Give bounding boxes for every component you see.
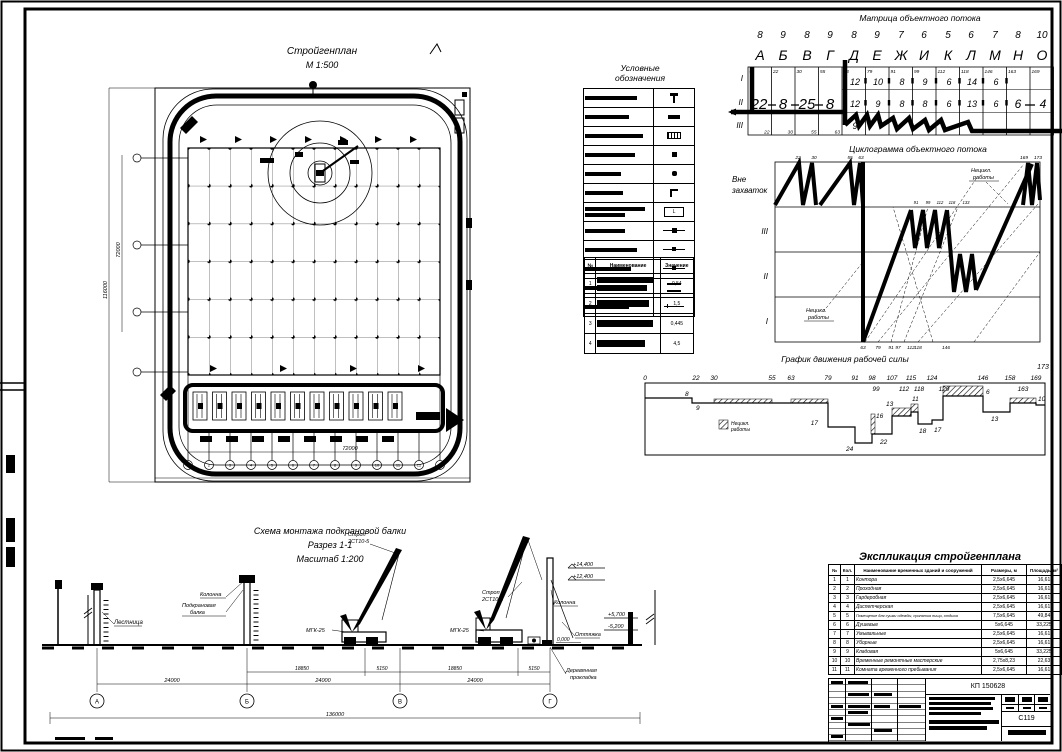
- section-dimensions: 18850 5150 18850 5150 24000 24000 24000 …: [50, 648, 640, 724]
- sling-label: Строп: [348, 532, 366, 538]
- svg-text:4: 4: [1040, 97, 1047, 111]
- dot2-icon: [672, 171, 677, 176]
- svg-text:24000: 24000: [163, 678, 180, 684]
- right-fence: [628, 590, 655, 645]
- svg-text:2СТ10-5: 2СТ10-5: [347, 539, 370, 545]
- labor-end-tick: 173: [1037, 364, 1049, 371]
- pad-label: Деревянная: [565, 668, 597, 674]
- legend-title: Условные: [583, 63, 697, 73]
- flag-icon: [670, 93, 678, 103]
- hatched-box-icon: [667, 132, 681, 139]
- svg-text:Вне: Вне: [732, 175, 747, 184]
- svg-text:99: 99: [872, 386, 880, 393]
- svg-text:8: 8: [757, 30, 763, 41]
- table-row: 1111Комната временного пребывания2,5х6,6…: [829, 666, 1062, 675]
- svg-text:12: 12: [850, 99, 860, 109]
- column-a: Лестница: [91, 583, 144, 645]
- svg-text:8: 8: [804, 30, 810, 41]
- section-titles: Схема монтажа подкрановой балки Разрез 1…: [254, 526, 406, 564]
- svg-text:133: 133: [963, 200, 971, 205]
- svg-text:5150: 5150: [528, 666, 539, 672]
- svg-text:79: 79: [867, 69, 873, 75]
- svg-text:91: 91: [914, 200, 919, 205]
- svg-text:6: 6: [993, 99, 998, 109]
- svg-text:Разрез 1-1: Разрез 1-1: [308, 540, 353, 550]
- svg-text:146: 146: [985, 69, 993, 75]
- svg-text:11: 11: [912, 396, 919, 403]
- svg-text:работы: работы: [807, 315, 829, 321]
- svg-text:118: 118: [914, 386, 925, 393]
- explication-table: № Кол. Наименование временных зданий и с…: [828, 564, 1062, 675]
- svg-text:6: 6: [993, 77, 998, 87]
- svg-text:22: 22: [879, 439, 888, 446]
- crane-model-label-2: МГК-25: [450, 628, 470, 634]
- table-row: 55Помещение для сушки одежды, принятия п…: [829, 612, 1062, 621]
- cyclogram-title: Циклограмма объектного потока: [849, 144, 987, 154]
- svg-text:163: 163: [1018, 386, 1029, 393]
- svg-text:118: 118: [949, 200, 956, 205]
- svg-text:Н: Н: [1013, 47, 1024, 63]
- table-row: 77Умывальные2,5х6,64516,61: [829, 630, 1062, 639]
- matrix-row2-values: 129 88 613 6: [850, 99, 999, 109]
- svg-text:169: 169: [1020, 155, 1028, 161]
- sling-label-2: Строп: [482, 590, 500, 596]
- svg-text:118000: 118000: [341, 472, 360, 478]
- svg-text:8: 8: [899, 99, 904, 109]
- svg-text:12: 12: [850, 77, 860, 87]
- line-square-icon: [663, 230, 685, 231]
- dot-icon: [672, 152, 677, 157]
- box-L-icon: L: [664, 207, 684, 217]
- svg-text:116000: 116000: [103, 280, 109, 299]
- svg-text:79: 79: [824, 375, 832, 382]
- svg-text:I: I: [766, 317, 769, 326]
- labor-legend: Нецикл. работы: [719, 420, 750, 433]
- svg-text:72000: 72000: [116, 241, 122, 257]
- svg-text:Г: Г: [826, 47, 835, 63]
- svg-text:7: 7: [992, 30, 998, 41]
- svg-text:22: 22: [763, 130, 770, 136]
- svg-text:30: 30: [811, 155, 817, 161]
- svg-text:Б: Б: [778, 47, 787, 63]
- svg-text:158: 158: [1005, 375, 1016, 382]
- matrix-row1-values: 1210 89 614 6: [850, 77, 999, 87]
- svg-text:173: 173: [1034, 155, 1042, 161]
- column-label-2: Колонна: [554, 600, 575, 606]
- svg-text:работы: работы: [730, 427, 750, 433]
- explication-title: Экспликация стройгенплана: [828, 551, 1052, 563]
- svg-text:9: 9: [827, 30, 833, 41]
- svg-text:5150: 5150: [376, 666, 387, 672]
- svg-text:III: III: [761, 227, 768, 236]
- svg-text:18850: 18850: [295, 666, 309, 672]
- svg-text:55: 55: [820, 69, 826, 75]
- svg-text:98: 98: [868, 375, 876, 382]
- matrix-row-labels: I II III: [736, 74, 743, 130]
- flow-matrix: Матрица объектного потока 89 89 89 76 56…: [728, 12, 1062, 140]
- svg-text:63: 63: [858, 155, 864, 161]
- col-num: №: [585, 258, 596, 274]
- crane-model-label: МГК-25: [306, 628, 326, 634]
- ladder-label: Лестница: [113, 620, 144, 626]
- svg-text:22: 22: [691, 375, 700, 382]
- svg-text:91: 91: [851, 375, 859, 382]
- table-row: 99Кладовая5х6,64533,225: [829, 648, 1062, 657]
- svg-text:12: 12: [417, 463, 422, 468]
- line-square-icon: [663, 249, 685, 250]
- svg-text:6: 6: [921, 30, 927, 41]
- table-row: 1010Временные ремонтные мастерские2,75х8…: [829, 657, 1062, 666]
- svg-text:В: В: [802, 47, 811, 63]
- labor-step-line: [645, 396, 1045, 443]
- svg-text:7: 7: [898, 30, 904, 41]
- svg-text:работы: работы: [972, 175, 994, 181]
- table-row: 44Диспетчерская2,5х6,64516,61: [829, 603, 1062, 612]
- svg-text:А: А: [754, 47, 764, 63]
- svg-text:91: 91: [891, 69, 897, 75]
- svg-text:55: 55: [847, 155, 853, 161]
- svg-text:22: 22: [772, 69, 779, 75]
- svg-text:Б: Б: [245, 700, 249, 706]
- svg-text:30: 30: [788, 130, 794, 136]
- table-row: 33Гардеробная2,5х6,64516,61: [829, 594, 1062, 603]
- col-value: Значение: [660, 258, 693, 274]
- svg-text:-5,200: -5,200: [608, 624, 625, 630]
- svg-text:К: К: [944, 47, 953, 63]
- svg-text:99: 99: [926, 200, 931, 205]
- svg-text:10: 10: [1036, 30, 1048, 41]
- svg-text:8: 8: [685, 391, 689, 398]
- small-stacks: [200, 436, 394, 442]
- svg-text:М: М: [989, 47, 1001, 63]
- svg-text:163: 163: [1008, 69, 1016, 75]
- sheet-number: С119: [1002, 712, 1051, 727]
- svg-text:И: И: [919, 47, 930, 63]
- svg-text:10: 10: [375, 463, 380, 468]
- svg-text:118: 118: [961, 69, 969, 75]
- svg-text:Г: Г: [548, 700, 552, 706]
- doc-description: [926, 695, 1000, 741]
- params-table: № Наименование Значение 10,54 21,5 30,44…: [584, 257, 694, 354]
- svg-text:13: 13: [991, 416, 999, 423]
- svg-text:112: 112: [899, 386, 910, 393]
- column-b: Колонна Подкрановая балка: [182, 575, 256, 645]
- left-fence: [55, 580, 92, 645]
- svg-text:22: 22: [794, 155, 801, 161]
- svg-text:99: 99: [914, 69, 920, 75]
- svg-text:17: 17: [811, 420, 819, 427]
- plan-axes: 12 34 56 78 910 1112 13: [184, 375, 445, 470]
- svg-text:III: III: [736, 121, 743, 130]
- signature-grid: [829, 679, 925, 741]
- svg-text:10: 10: [873, 77, 883, 87]
- svg-text:2: 2: [208, 463, 211, 468]
- svg-text:6: 6: [986, 389, 990, 396]
- svg-text:Схема монтажа подкрановой балк: Схема монтажа подкрановой балки: [254, 526, 406, 536]
- svg-text:18: 18: [919, 428, 927, 435]
- svg-text:72000: 72000: [342, 446, 358, 452]
- cyclogram-notes: Нецикл. работы Нецикл. работы: [804, 168, 999, 321]
- svg-text:14: 14: [967, 77, 977, 87]
- svg-text:Ж: Ж: [894, 47, 909, 63]
- svg-text:18850: 18850: [448, 666, 462, 672]
- svg-text:13: 13: [886, 401, 894, 408]
- labor-chart-title: График движения рабочей силы: [781, 354, 909, 364]
- cyclogram-axis-numbers: 6379 9197 112118 146 2230 5563 169173 91…: [794, 155, 1042, 351]
- svg-text:112: 112: [937, 200, 944, 205]
- svg-text:Л: Л: [965, 47, 976, 63]
- svg-text:прокладка: прокладка: [570, 675, 597, 681]
- svg-text:9: 9: [780, 30, 786, 41]
- svg-text:112: 112: [938, 69, 946, 75]
- svg-text:9: 9: [696, 405, 700, 412]
- svg-text:124: 124: [927, 375, 938, 382]
- svg-text:30: 30: [710, 375, 718, 382]
- table-row: 22Проходная2,5х6,64516,61: [829, 585, 1062, 594]
- svg-text:169: 169: [1031, 375, 1042, 382]
- svg-text:О: О: [1037, 47, 1048, 63]
- matrix-durations: 89 89 89 76 56 78 10: [757, 30, 1048, 41]
- svg-text:115: 115: [906, 375, 917, 382]
- svg-text:6: 6: [968, 30, 974, 41]
- svg-text:146: 146: [978, 375, 989, 382]
- svg-text:6: 6: [946, 99, 951, 109]
- svg-text:Е: Е: [872, 47, 882, 63]
- building-grid: [188, 148, 440, 375]
- svg-text:I: I: [741, 74, 744, 83]
- svg-text:63: 63: [835, 130, 841, 136]
- svg-text:107: 107: [887, 375, 898, 382]
- svg-text:24: 24: [845, 446, 854, 453]
- svg-text:9: 9: [922, 77, 927, 87]
- doc-code: КП 150628: [926, 679, 1050, 695]
- labor-frame: [645, 383, 1045, 455]
- svg-text:8: 8: [1015, 30, 1021, 41]
- svg-text:0,000: 0,000: [557, 637, 570, 643]
- corner-icon: [670, 189, 678, 197]
- matrix-tail-values: 64: [1015, 97, 1047, 111]
- svg-text:Нецикл.: Нецикл.: [971, 168, 991, 174]
- svg-text:55: 55: [811, 130, 817, 136]
- svg-text:136000: 136000: [326, 712, 345, 718]
- svg-text:+5,700: +5,700: [608, 612, 626, 618]
- svg-text:8: 8: [922, 99, 927, 109]
- site-plan-title: Стройгенплан: [287, 46, 358, 57]
- svg-text:0: 0: [643, 375, 647, 382]
- matrix-letters: АБ ВГ ДЕ ЖИ КЛ МН О: [754, 47, 1047, 63]
- svg-text:Масштаб 1:200: Масштаб 1:200: [296, 554, 363, 564]
- material-stacks: [193, 392, 402, 420]
- svg-text:Нецикл.: Нецикл.: [806, 308, 826, 314]
- svg-text:8: 8: [899, 77, 904, 87]
- section-axes: А Б В Г: [90, 694, 557, 708]
- col-name: Наименование: [596, 258, 660, 274]
- svg-text:захваток: захваток: [731, 186, 769, 195]
- legend-title2: обозначения: [583, 73, 697, 83]
- svg-text:24000: 24000: [466, 678, 483, 684]
- solid-bar-icon: [668, 115, 680, 119]
- table-row: 11Контора2,5х6,64516,61: [829, 576, 1062, 585]
- explication: Экспликация стройгенплана № Кол. Наимено…: [828, 551, 1052, 675]
- svg-text:13: 13: [438, 463, 443, 468]
- svg-text:Д: Д: [847, 47, 859, 63]
- cyclogram-left-labels: Вне захваток III II I: [731, 175, 769, 326]
- svg-text:13: 13: [967, 99, 977, 109]
- svg-text:5: 5: [945, 30, 951, 41]
- svg-text:169: 169: [1032, 69, 1040, 75]
- guy-label: Оттяжка: [575, 632, 601, 638]
- crane-beam-label: Подкрановая: [182, 603, 216, 609]
- svg-text:+14,400: +14,400: [573, 562, 594, 568]
- svg-text:II: II: [764, 272, 769, 281]
- table-row: 66Душевые5х6,64533,225: [829, 621, 1062, 630]
- crane-2: Строп 2СТ10-5 МГК-25: [450, 536, 542, 645]
- site-plan-scale: М 1:500: [306, 60, 339, 70]
- svg-text:9: 9: [875, 99, 880, 109]
- svg-text:балка: балка: [190, 610, 205, 616]
- svg-text:30: 30: [797, 69, 803, 75]
- path-entry-arrow-icon: [728, 109, 736, 116]
- labor-chart: График движения рабочей силы 173 022 305…: [635, 350, 1058, 462]
- svg-text:55: 55: [768, 375, 776, 382]
- svg-text:17: 17: [934, 427, 942, 434]
- svg-text:2СТ10-5: 2СТ10-5: [481, 597, 504, 603]
- plan-row-axes: [133, 154, 188, 376]
- cyclogram: Циклограмма объектного потока Вне захват…: [728, 142, 1062, 354]
- svg-text:24000: 24000: [314, 678, 331, 684]
- svg-text:9: 9: [874, 30, 880, 41]
- title-block: КП 150628 С119: [828, 678, 1052, 743]
- svg-text:В: В: [398, 700, 402, 706]
- table-row: 88Уборные2,5х6,64516,61: [829, 639, 1062, 648]
- svg-text:8: 8: [851, 30, 857, 41]
- svg-text:+12,400: +12,400: [573, 574, 594, 580]
- drawing-sheet: Стройгенплан М 1:500: [0, 0, 1062, 752]
- site-plan: Стройгенплан М 1:500: [100, 40, 480, 490]
- svg-text:63: 63: [787, 375, 795, 382]
- svg-text:6: 6: [1015, 97, 1022, 111]
- svg-text:II: II: [739, 98, 744, 107]
- matrix-title: Матрица объектного потока: [859, 13, 981, 23]
- svg-text:А: А: [95, 700, 99, 706]
- erection-section: Схема монтажа подкрановой балки Разрез 1…: [30, 520, 685, 748]
- svg-text:6: 6: [946, 77, 951, 87]
- svg-text:16: 16: [876, 413, 884, 420]
- column-label: Колонна: [200, 592, 221, 598]
- svg-text:10: 10: [1038, 396, 1046, 403]
- doc-status-grid: С119: [1001, 695, 1051, 741]
